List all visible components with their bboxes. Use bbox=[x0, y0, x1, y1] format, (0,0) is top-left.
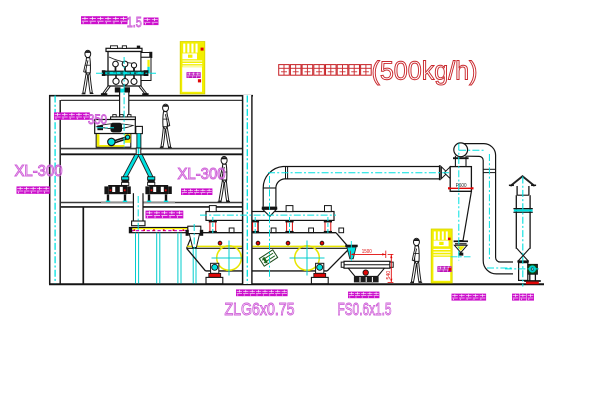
svg-text:(500kg/h): (500kg/h) bbox=[372, 58, 478, 86]
svg-text:1.5: 1.5 bbox=[127, 14, 142, 31]
svg-text:350: 350 bbox=[88, 112, 107, 128]
svg-text:ZLG6x0.75: ZLG6x0.75 bbox=[225, 299, 295, 319]
svg-text:540: 540 bbox=[386, 271, 392, 280]
svg-text:XL-300: XL-300 bbox=[15, 163, 63, 180]
svg-text:XL-300: XL-300 bbox=[178, 166, 226, 183]
svg-text:FS0.6x1.5: FS0.6x1.5 bbox=[338, 299, 392, 319]
svg-text:1500: 1500 bbox=[362, 249, 372, 255]
